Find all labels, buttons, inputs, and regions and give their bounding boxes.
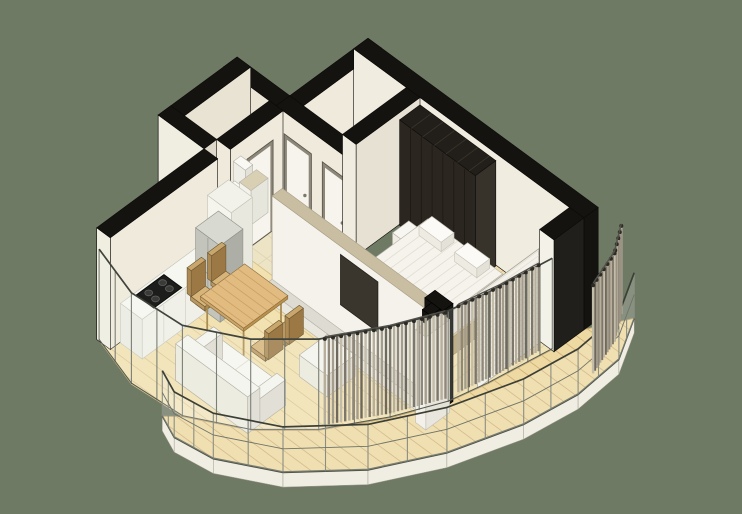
burner-2 xyxy=(166,286,174,292)
burner-1 xyxy=(159,280,167,286)
screenshot-root xyxy=(0,0,742,514)
burner-4 xyxy=(152,296,160,302)
apartment-isometric-floorplan xyxy=(0,0,742,514)
burner-3 xyxy=(145,290,153,296)
